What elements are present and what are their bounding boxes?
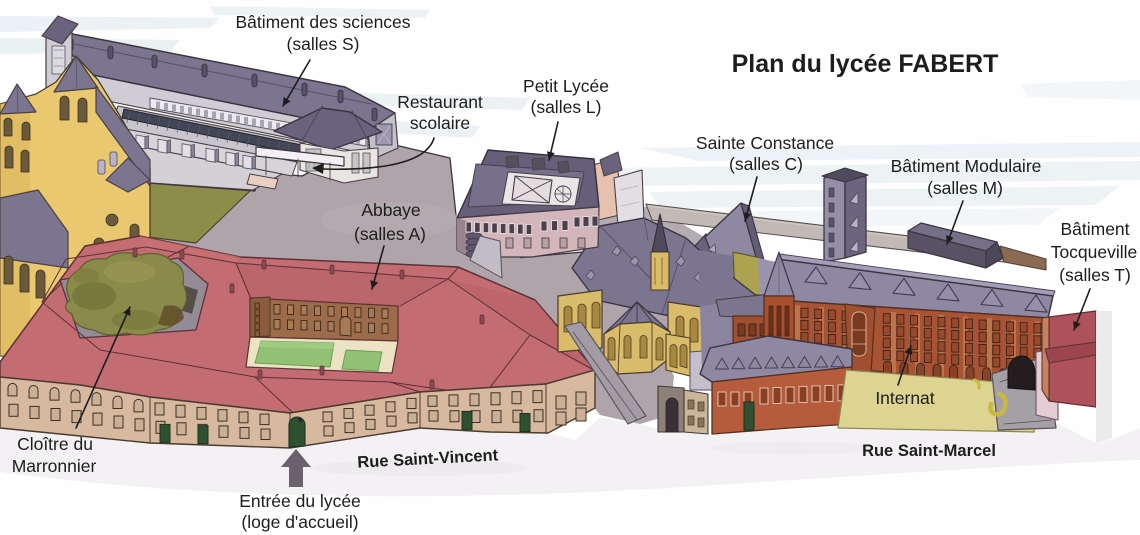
- svg-text:Bâtiment: Bâtiment: [1060, 219, 1129, 239]
- svg-text:Bâtiment Modulaire: Bâtiment Modulaire: [891, 156, 1042, 176]
- svg-text:(salles M): (salles M): [927, 178, 1003, 198]
- svg-text:(salles A): (salles A): [354, 224, 426, 244]
- svg-text:Internat: Internat: [875, 388, 934, 408]
- svg-text:Entrée du lycée: Entrée du lycée: [239, 491, 361, 511]
- svg-text:(salles T): (salles T): [1059, 265, 1131, 285]
- svg-text:Bâtiment des sciences: Bâtiment des sciences: [235, 12, 410, 32]
- svg-text:(salles L): (salles L): [531, 97, 602, 117]
- svg-text:Plan du lycée FABERT: Plan du lycée FABERT: [732, 50, 999, 78]
- svg-text:(loge d'accueil): (loge d'accueil): [241, 512, 358, 532]
- svg-text:Rue Saint-Marcel: Rue Saint-Marcel: [862, 442, 996, 460]
- svg-text:Petit Lycée: Petit Lycée: [523, 76, 609, 96]
- svg-text:Marronnier: Marronnier: [12, 456, 97, 476]
- svg-text:Sainte Constance: Sainte Constance: [696, 133, 834, 153]
- svg-text:Restaurant: Restaurant: [397, 92, 483, 112]
- svg-text:♞: ♞: [297, 416, 303, 424]
- svg-text:Tocqueville: Tocqueville: [1051, 242, 1138, 262]
- svg-text:(salles C): (salles C): [729, 154, 803, 174]
- svg-text:Cloître du: Cloître du: [17, 434, 93, 454]
- svg-text:(salles S): (salles S): [287, 34, 360, 54]
- svg-text:Abbaye: Abbaye: [361, 200, 420, 220]
- svg-text:scolaire: scolaire: [410, 113, 470, 133]
